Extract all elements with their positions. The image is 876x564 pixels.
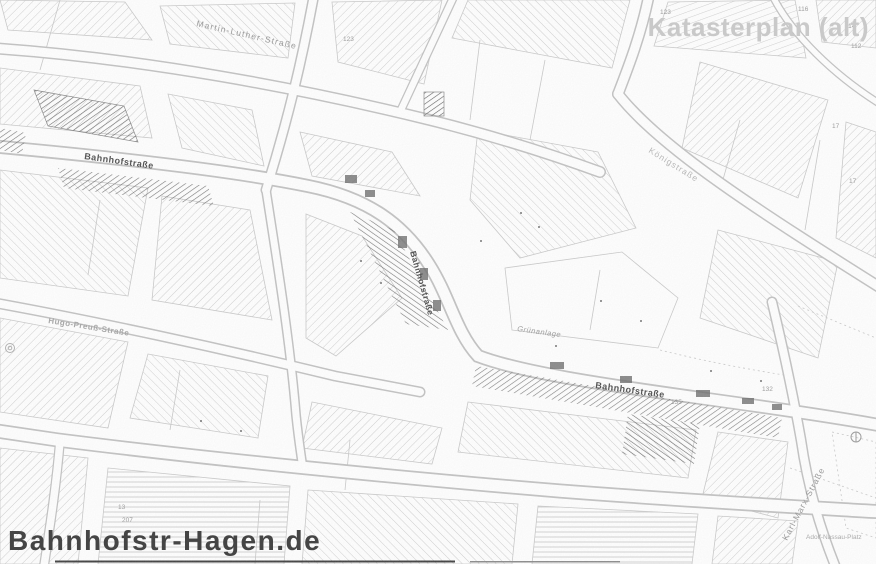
parcel-number: 135 bbox=[671, 399, 682, 406]
watermark-katasterplan: Katasterplan (alt) bbox=[648, 12, 869, 42]
parcel-number: 207 bbox=[122, 517, 133, 524]
place-label-adolf-nassau-platz: Adolf-Nassau-Platz bbox=[806, 534, 862, 541]
parcel-number: 17 bbox=[849, 178, 857, 185]
parcel-number: 123 bbox=[343, 36, 354, 43]
katasterplan-page: 123123116114112171713213520713 Martin-Lu… bbox=[0, 0, 876, 564]
scan-noise-overlay bbox=[0, 0, 876, 564]
parcel-number: 17 bbox=[832, 123, 840, 130]
katasterplan-map: 123123116114112171713213520713 Martin-Lu… bbox=[0, 0, 876, 564]
parcel-number: 112 bbox=[851, 43, 862, 50]
parcel-number: 13 bbox=[118, 504, 126, 511]
parcel-number: 132 bbox=[762, 386, 773, 393]
watermark-site-url: Bahnhofstr-Hagen.de bbox=[8, 525, 321, 556]
